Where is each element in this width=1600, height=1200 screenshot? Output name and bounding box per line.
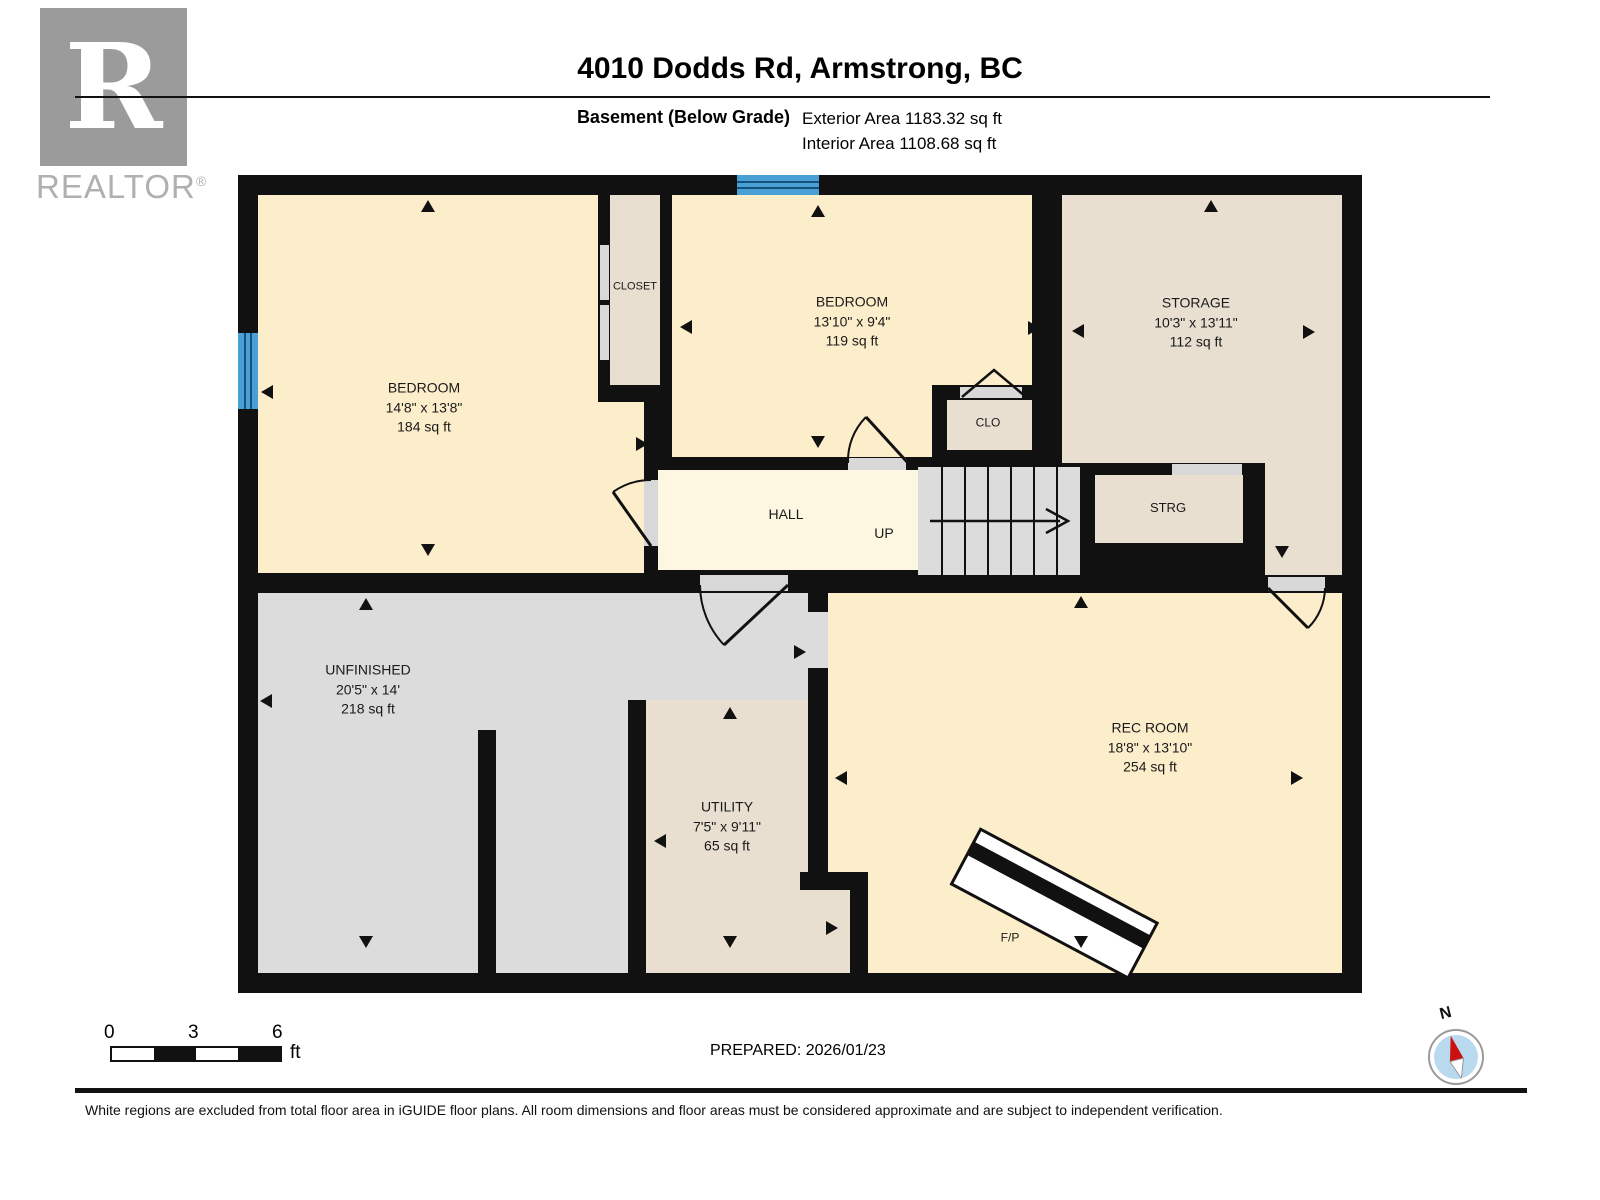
compass-circle <box>1428 1029 1484 1085</box>
window <box>737 175 819 195</box>
room-unfinished <box>628 593 808 700</box>
camera-arrow-icon <box>811 205 825 217</box>
room-bedroom-2 <box>672 195 1032 385</box>
camera-arrow-icon <box>835 771 847 785</box>
room-label-hall: HALL <box>768 505 803 525</box>
closet-door-opening <box>600 305 609 360</box>
wall-segment <box>850 890 868 973</box>
camera-arrow-icon <box>680 320 692 334</box>
interior-area: Interior Area 1108.68 sq ft <box>802 134 996 154</box>
scale-unit-label: ft <box>290 1042 301 1064</box>
room-bedroom-2 <box>672 385 932 457</box>
stair-tread-line <box>1033 467 1035 575</box>
header-divider <box>75 96 1490 98</box>
floor-label: Basement (Below Grade) <box>0 107 790 128</box>
wall-segment <box>800 872 868 890</box>
scale-tick-label: 0 <box>104 1022 115 1044</box>
camera-arrow-icon <box>826 921 838 935</box>
stair-tread-line <box>1056 467 1058 575</box>
floor-plan-page: R REALTOR® 4010 Dodds Rd, Armstrong, BC … <box>0 0 1600 1200</box>
window <box>238 333 258 409</box>
camera-arrow-icon <box>1072 324 1084 338</box>
exterior-area: Exterior Area 1183.32 sq ft <box>802 109 1002 129</box>
compass-face <box>1434 1035 1478 1079</box>
compass-needle-icon <box>1440 1033 1472 1081</box>
stair-tread-line <box>964 467 966 575</box>
camera-arrow-icon <box>1204 200 1218 212</box>
camera-arrow-icon <box>811 436 825 448</box>
footer-divider <box>75 1088 1527 1093</box>
camera-arrow-icon <box>1028 321 1040 335</box>
room-label-clo: CLO <box>976 415 1001 432</box>
stair-tread-line <box>987 467 989 575</box>
camera-arrow-icon <box>1291 771 1303 785</box>
hall-south-door-opening <box>700 575 788 591</box>
window-pane-line <box>737 181 819 183</box>
compass-north-label: N <box>1438 1004 1454 1024</box>
closet-door-opening <box>600 245 609 300</box>
room-label-rec-room: REC ROOM18'8" x 13'10"254 sq ft <box>1108 719 1193 778</box>
passage-opening <box>808 612 828 668</box>
rec-room-door-opening <box>1268 577 1325 591</box>
camera-arrow-icon <box>794 645 806 659</box>
room-label-utility: UTILITY7'5" x 9'11"65 sq ft <box>693 798 761 857</box>
bedroom1-door-opening <box>644 480 658 546</box>
room-label-bedroom-1: BEDROOM14'8" x 13'8"184 sq ft <box>386 379 463 438</box>
room-label-storage: STORAGE10'3" x 13'11"112 sq ft <box>1154 294 1238 353</box>
page-title: 4010 Dodds Rd, Armstrong, BC <box>0 52 1600 86</box>
realtor-r-icon: R <box>64 28 162 146</box>
camera-arrow-icon <box>260 694 272 708</box>
camera-arrow-icon <box>359 936 373 948</box>
camera-arrow-icon <box>359 598 373 610</box>
registered-mark: ® <box>196 173 207 189</box>
room-label-bedroom-2: BEDROOM13'10" x 9'4"119 sq ft <box>814 293 891 352</box>
stair-tread-line <box>1010 467 1012 575</box>
camera-arrow-icon <box>636 437 648 451</box>
wall-segment <box>478 730 496 973</box>
camera-arrow-icon <box>1074 936 1088 948</box>
room-label-unfinished: UNFINISHED20'5" x 14'218 sq ft <box>325 661 411 720</box>
scale-tick-label: 3 <box>188 1022 199 1044</box>
stairs-up-label: UP <box>874 524 893 544</box>
camera-arrow-icon <box>723 936 737 948</box>
stair-tread-line <box>941 467 943 575</box>
realtor-logo: R <box>40 8 187 166</box>
camera-arrow-icon <box>1275 546 1289 558</box>
camera-arrow-icon <box>1074 596 1088 608</box>
camera-arrow-icon <box>1303 325 1315 339</box>
room-bedroom-1 <box>598 402 644 573</box>
room-label-strg: STRG <box>1150 499 1186 517</box>
camera-arrow-icon <box>421 200 435 212</box>
realtor-wordmark: REALTOR® <box>36 168 207 206</box>
prepared-date: PREPARED: 2026/01/23 <box>710 1042 886 1060</box>
bedroom2-door-opening <box>848 458 906 470</box>
room-storage <box>1265 463 1342 575</box>
strg-door-opening <box>1172 464 1242 475</box>
room-rec-room <box>828 593 1342 973</box>
scale-tick-label: 6 <box>272 1022 283 1044</box>
camera-arrow-icon <box>421 544 435 556</box>
room-label-closet: CLOSET <box>613 279 657 294</box>
scale-bar-segments <box>110 1046 282 1062</box>
clo-door-opening <box>960 387 1022 398</box>
room-unfinished <box>258 593 628 973</box>
window-pane-line <box>244 333 246 409</box>
camera-arrow-icon <box>654 834 666 848</box>
window-pane-line <box>250 333 252 409</box>
fireplace-label: F/P <box>1001 930 1020 947</box>
camera-arrow-icon <box>723 707 737 719</box>
window-pane-line <box>737 187 819 189</box>
camera-arrow-icon <box>261 385 273 399</box>
disclaimer-text: White regions are excluded from total fl… <box>85 1102 1223 1118</box>
